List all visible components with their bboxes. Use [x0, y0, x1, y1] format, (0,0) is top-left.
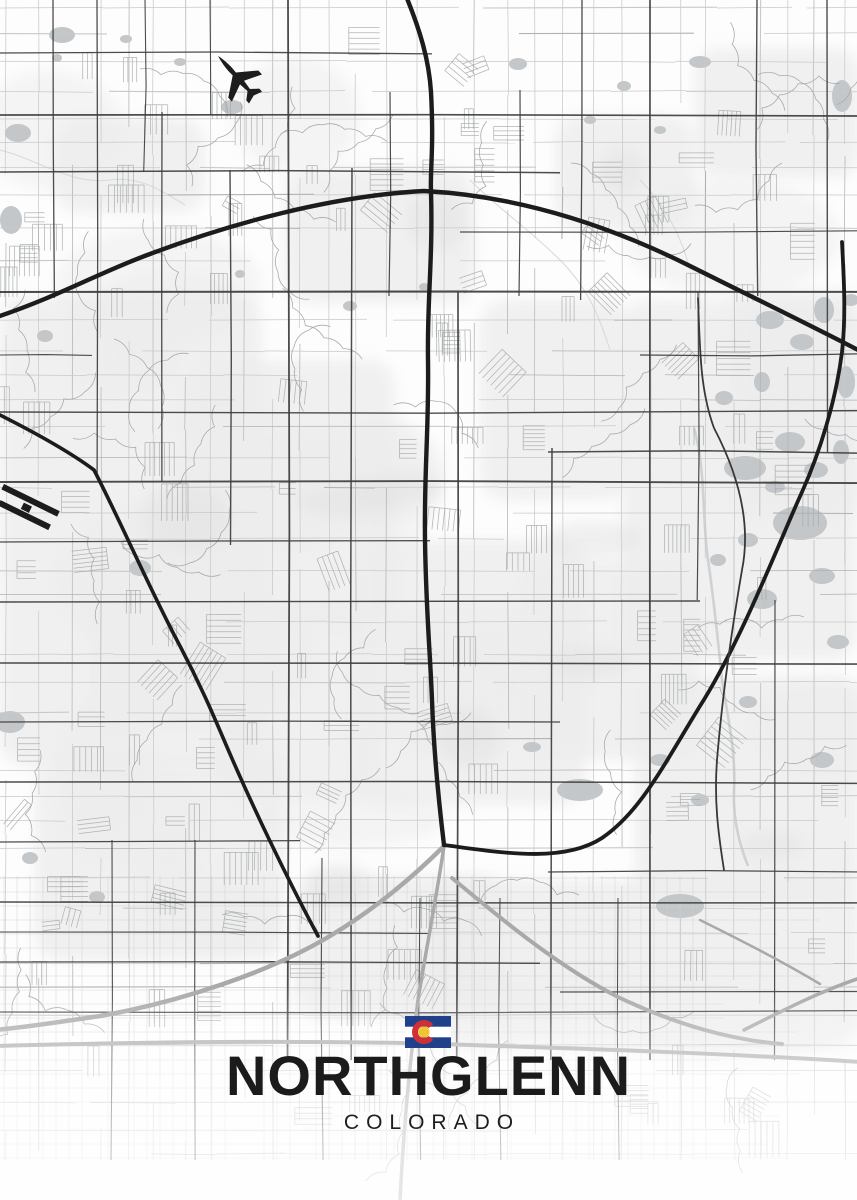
map-poster: NORTHGLENN COLORADO [0, 0, 857, 1200]
poster-title: NORTHGLENN [0, 1048, 857, 1104]
poster-subtitle: COLORADO [0, 1112, 857, 1133]
